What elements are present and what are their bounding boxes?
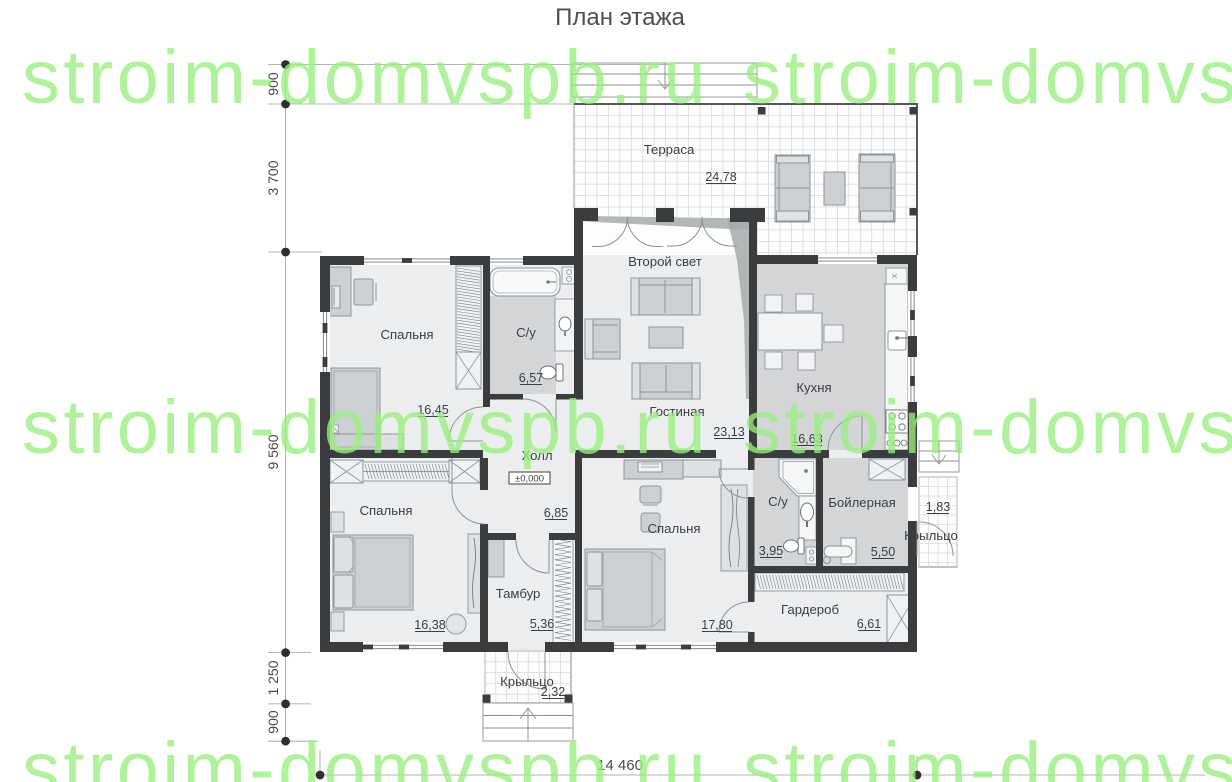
svg-text:24,78: 24,78 [705, 170, 737, 184]
svg-text:С/у: С/у [768, 494, 788, 509]
svg-text:Крыльцо: Крыльцо [904, 528, 958, 543]
svg-text:Гардероб: Гардероб [781, 602, 839, 617]
svg-text:5,36: 5,36 [530, 617, 555, 631]
svg-text:3 700: 3 700 [265, 160, 281, 195]
svg-text:5,50: 5,50 [871, 545, 896, 559]
svg-text:Спальня: Спальня [360, 503, 413, 518]
svg-text:3,95: 3,95 [759, 544, 784, 558]
svg-text:Тамбур: Тамбур [496, 586, 541, 601]
svg-text:1,83: 1,83 [926, 500, 951, 514]
svg-text:6,85: 6,85 [544, 506, 569, 520]
svg-text:17,80: 17,80 [701, 618, 733, 632]
svg-text:stroim-domvspb.ru: stroim-domvspb.ru [743, 385, 1232, 470]
svg-text:6,57: 6,57 [519, 371, 544, 385]
svg-text:Бойлерная: Бойлерная [828, 495, 895, 510]
svg-text:23,13: 23,13 [713, 425, 745, 439]
svg-text:Второй свет: Второй свет [628, 254, 702, 269]
svg-text:2,32: 2,32 [541, 685, 566, 699]
svg-text:План этажа: План этажа [555, 4, 685, 31]
svg-text:stroim-domvspb.ru: stroim-domvspb.ru [743, 727, 1232, 782]
svg-text:6,61: 6,61 [857, 617, 882, 631]
svg-text:Терраса: Терраса [644, 142, 695, 157]
svg-text:stroim-domvspb.ru: stroim-domvspb.ru [743, 35, 1232, 120]
svg-text:С/у: С/у [516, 325, 536, 340]
svg-text:±0,000: ±0,000 [515, 474, 544, 485]
svg-text:stroim-domvspb.ru: stroim-domvspb.ru [22, 385, 709, 470]
svg-text:stroim-domvspb.ru: stroim-domvspb.ru [22, 35, 709, 120]
svg-text:Спальня: Спальня [381, 327, 434, 342]
svg-text:stroim-domvspb.ru: stroim-domvspb.ru [22, 727, 709, 782]
svg-text:Спальня: Спальня [648, 521, 701, 536]
svg-text:1 250: 1 250 [265, 660, 281, 695]
svg-text:16,38: 16,38 [414, 618, 446, 632]
